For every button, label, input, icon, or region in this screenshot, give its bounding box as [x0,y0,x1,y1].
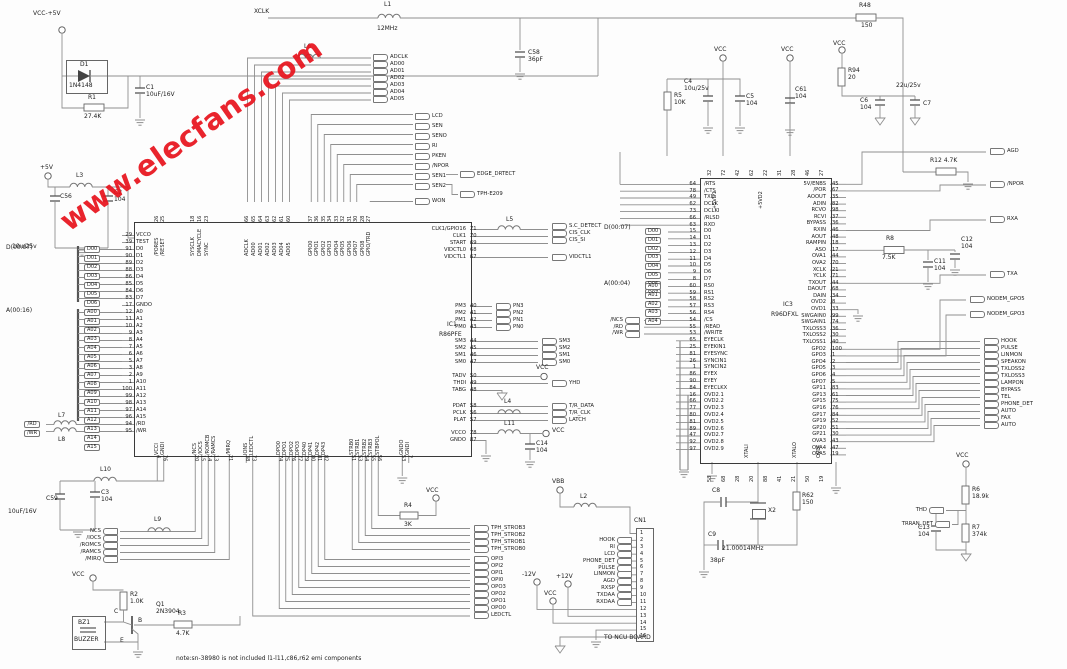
pin-number: 69 [466,241,490,246]
pin-number: 65 [640,338,698,343]
pin-name: TXLOSS2 [760,333,826,338]
bus-signal-tag: D02 [84,264,100,271]
pin-number: 44 [826,281,850,286]
pin-name: STRB3 [369,421,374,455]
pin-number: 41 [778,464,783,482]
tag-shape-icon [415,173,430,180]
signal-tag: RXA [988,216,1018,223]
ad-tags: ADCLKAD00AD01AD02AD03AD04AD05 [371,54,408,103]
pin-row: 11A1 [112,316,152,323]
bus-signal-tag: A09 [84,390,100,397]
tag-shape-icon [617,551,632,558]
pin-name: LEDCTL [250,421,255,455]
pin-number: 71 [826,274,850,279]
pin-number: 31 [348,202,353,222]
ic1-top-pins-reset: 26/PORES25/RESET [154,202,167,256]
signal-tag: LAMPON [982,380,1033,387]
pin-row: GPO31 [760,352,850,359]
pin-column-item: 88 [759,464,773,482]
tag-shape-icon [103,528,118,535]
tag-shape-icon [474,584,489,591]
tag-label: THD [916,508,927,513]
pin-name: IONS [244,421,249,455]
pin-number: 89 [640,427,698,432]
signal-tag: /IOCS [86,535,120,542]
edge-tag: EDGE_DRTECT [458,171,515,178]
r7-value: 374k [972,531,987,538]
tag-shape-icon [415,113,430,120]
tag-label: S.C_DETECT [569,224,601,229]
pin-number: 39 [112,240,134,245]
pin-name: PM2 [404,311,466,316]
tag-label: /NCS [610,318,623,323]
pin-number: 26 [155,202,160,222]
c3-ref: C3 [101,489,112,496]
pin-number: 5 [826,380,850,385]
tag-label: SM0 [559,360,570,365]
pin-name: GPIO4 [335,222,340,256]
pin-name: TXLOSS1 [760,340,826,345]
pin-name: OVD2.1 [698,393,724,398]
pin-name: AOOUT [760,195,826,200]
pin-name: SYNCIN1 [698,359,727,364]
tag-shape-icon [415,133,430,140]
bus-signal-tag: A03 [645,309,661,316]
pin-number: 2 [112,373,134,378]
connector-pin-number: 4 [640,551,646,558]
tag-shape-icon [415,153,430,160]
tag-shape-icon [990,181,1005,188]
sm-tags: SM3SM2SM1SM0 [540,338,570,366]
pin-name: GP15 [760,399,826,404]
pin-name: A11 [134,387,146,392]
pin-name: 5V/ENBS [760,182,826,187]
pin-number: 48 [826,235,850,240]
pin-name: GNDO [404,438,466,443]
tag-shape-icon [496,310,511,317]
pin-number: 96 [112,415,134,420]
pin-name: RCVI [760,215,826,220]
connector-pin-number: 9 [640,585,646,592]
tag-shape-icon [474,539,489,546]
bus-signal-tag: D03 [645,254,661,261]
rdwr-tags: /RD/WR [24,421,40,439]
pin-name: VCCO [404,431,466,436]
q1-label: Q12N3904 [156,601,180,615]
pin-name: GPIO7 [354,222,359,256]
bus-signal-tag: D01 [84,255,100,262]
yhd-tag: YHD [550,380,580,387]
bus-signal-tag: D01 [645,237,661,244]
signal-tag: AD01 [371,68,408,75]
pin-name: GPIO6 [348,222,353,256]
tag-shape-icon [542,345,557,352]
pin-number: 36 [826,327,850,332]
signal-tag: TPH_STROB0 [472,546,526,553]
pin-name: PM0 [404,325,466,330]
signal-tag: AD02 [371,75,408,82]
pin-row: 84D6 [112,288,152,295]
pin-name: A12 [134,394,146,399]
connector-pin-number: 10 [640,592,646,599]
pin-name: DAIN [760,294,826,299]
pin-number: 42 [736,158,741,176]
ic3-5vd2-label: +5VD2 [758,183,764,209]
pin-number: 74 [277,455,282,475]
pin-row: 29VCCO [112,232,152,239]
pin-row: YCLK71 [760,273,850,280]
tag-label: SPEAKON [1001,360,1026,365]
pin-number: 44 [826,254,850,259]
tag-label: TPH_STROB3 [491,526,526,531]
tag-label: AD02 [390,76,404,81]
cis-tags: S.C_DETECTCIS_CLKCIS_SI [550,223,601,244]
pin-number: 66 [245,202,250,222]
pin-number: 56 [376,455,381,475]
r8-label: R8 [886,235,894,242]
tag-label: PN1 [513,318,524,323]
tag-label: TXLOSS2 [1001,367,1025,372]
pin-row: 97OVD2.9 [640,446,728,453]
signal-tag: THD [916,507,946,514]
c56-value: 10u/25v [12,243,37,250]
bus-signal-tag: A00 [84,309,100,316]
signal-tag: CIS_CLK [550,230,601,237]
pin-name: DP41 [309,421,314,455]
pin-row: RCVO98 [760,207,850,214]
c12-ref: C12 [961,236,973,243]
tag-label: OPI1 [491,571,503,576]
signal-tag: SEN2 [413,181,449,191]
pin-row: 7A5 [112,344,152,351]
pin-number: 75 [826,399,850,404]
ncs-tags: NCS/IOCS/ROMCS/RAMCS/MIRQ [82,528,120,563]
pin-name: /RESET [161,222,166,256]
ic1-left-pins: 29VCCO39TEST91D090D189D288D386D485D584D6… [112,232,152,435]
pin-row: OVD133 [760,306,850,313]
l8-label: L8 [58,436,65,443]
tag-label: PULSE [598,566,615,571]
tag-shape-icon [496,317,511,324]
pin-name: GPO6 [760,373,826,378]
c9-value: 38pF [710,557,725,564]
tag-label: OPO0 [491,606,506,611]
c3-value: 104 [101,496,112,503]
pin-row: 88D3 [112,267,152,274]
tag-shape-icon [460,191,475,198]
pin-name: YCLK [760,274,826,279]
pin-number: 83 [112,296,134,301]
tag-label: RXDAA [596,600,615,605]
signal-tag: /NPOR [413,161,449,171]
pin-name: RXIN [760,228,826,233]
pin-number: 97 [640,447,698,452]
pin-name: /RLSD [698,216,720,221]
vbb-label: VBB [552,478,564,485]
pin-name: SM1 [404,353,466,358]
pin-name: GPIO1 [315,222,320,256]
pin-name: D6 [134,289,143,294]
tag-shape-icon [373,89,388,96]
pin-number: 1 [640,365,698,370]
pin-name: /READ [698,325,720,330]
pin-column-item: 72 [717,158,731,176]
pin-row: VIDCTL068 [404,247,490,254]
pin-number: 76 [290,455,295,475]
tag-label: LINMON [1001,353,1022,358]
pin-row: 96A15 [112,414,152,421]
pin-name: TXLOSS3 [760,327,826,332]
pin-column-item: 68 [717,464,731,482]
d1-label: D1 [80,61,88,68]
pin-column-item: 31 [773,158,787,176]
pin-number: 62 [273,202,278,222]
connector-pin-number: 1 [640,530,646,537]
signal-tag: BYPASS [982,387,1033,394]
pin-number: 36 [315,202,320,222]
pin-number: 19 [826,452,850,457]
pin-name: OVA2 [760,261,826,266]
pin-column-item: 41 [773,464,787,482]
r5-label: R510K [674,92,686,106]
pin-number: 86 [640,372,698,377]
tag-shape-icon [415,123,430,130]
pin-column-item: 28 [731,464,745,482]
pin-row: CLK1/GPIO1671 [404,226,490,233]
pin-name: D1 [698,236,711,241]
tag-shape-icon [984,352,999,359]
pin-row: GP1183 [760,385,850,392]
pin-number: 28 [792,158,797,176]
q1-value: 2N3904 [156,608,180,615]
pin-name: D2 [698,243,711,248]
ic1-bottom-pins-pwr: 4VCCI76GNDI [154,421,167,475]
pin-number: 7 [406,455,411,475]
signal-tag: RXDAA [596,599,634,606]
pin-name: STRB1 [356,421,361,455]
tph-strobe-tags: TPH_STROB3TPH_STROB2TPH_STROB1TPH_STROB0 [472,525,526,553]
tag-label: RXA [1007,217,1018,222]
pin-number: 32 [341,202,346,222]
tph-e209-tag: TPH-E209 [458,191,503,198]
bus-signal-tag: /RD [24,421,40,428]
pin-number: 64 [259,202,264,222]
pin-number: 45 [466,346,490,351]
tag-label: RI [432,144,437,149]
pin-row: PCLK56 [404,410,490,417]
pin-number: 68 [826,287,850,292]
pin-column-item: 20 [745,464,759,482]
signal-tag: NODEM_GPO5 [968,296,1025,303]
pin-number: 94 [112,422,134,427]
pin-column-item: 22 [759,158,773,176]
l4-label: L4 [504,398,511,405]
pin-row: TABG48 [404,387,490,394]
pin-name: STBPOL [376,421,381,455]
tag-shape-icon [617,599,632,606]
tag-label: BYPASS [1001,388,1021,393]
pin-number: 3 [112,366,134,371]
signal-tag: WON [413,198,445,205]
r5-value: 10K [674,99,686,106]
signal-tag: OPO1 [472,598,506,605]
pin-number: 90 [640,379,698,384]
tag-label: PULSE [1001,346,1018,351]
ic3-xtalo-label: XTALO [792,430,798,458]
c1-ref: C1 [146,84,175,91]
c6-label: C6104 [860,97,871,111]
pin-number: 100 [826,347,850,352]
signal-tag: OPI1 [472,570,503,577]
tag-label: AD03 [390,83,404,88]
signal-tag: PN1 [494,317,524,324]
pin-number: 20 [750,464,755,482]
bus-signal-tag: A11 [84,408,100,415]
signal-tag: AGD [988,148,1019,155]
pin-number: 84 [112,289,134,294]
pin-number: 8 [826,300,850,305]
pin-number: 71 [466,227,490,232]
ic1-right-pins-pm: PM340PM241PM142PM043 [404,303,490,331]
signal-tag: SM3 [540,338,570,345]
minus12-label: -12V [522,571,536,578]
c11-value: 104 [934,265,946,272]
tag-shape-icon [935,521,950,528]
tag-shape-icon [552,254,567,261]
pin-number: 81 [640,420,698,425]
signal-tag: TXLOSS3 [982,373,1033,380]
vcc-label-3: VCC [833,40,845,47]
signal-tag: OPO2 [472,591,506,598]
pin-name: A7 [134,359,143,364]
pin-name: D5 [698,263,711,268]
pin-name: /CS [698,318,713,323]
pin-number: 98 [826,208,850,213]
tag-shape-icon [552,380,567,387]
c12-label: C12104 [961,236,973,250]
pin-row: 8A4 [112,337,152,344]
c9-label: C9 [708,531,716,538]
pin-number: 4 [826,373,850,378]
pin-row: 66/RLSD [640,215,728,222]
vcc-label-buzzer: VCC [72,571,84,578]
pin-column-item: 82DP43 [322,421,329,475]
modem-gpo3-tag: NODEM_GPO3 [968,311,1025,318]
pin-number: 7 [112,345,134,350]
ic1-right-pins-clk: CLK1/GPIO1671CLK170START69VIDCTL068VIDCT… [404,226,490,261]
tag-shape-icon [474,598,489,605]
pin-column-item: 76GNDI [161,421,168,475]
pin-column-item: 53 [703,464,717,482]
signal-tag: /NPOR [988,181,1024,188]
pin-name: EYEY [698,379,717,384]
pin-column-item: 42 [731,158,745,176]
pin-row: PM142 [404,317,490,324]
pin-name: DCLKI [698,209,719,214]
pin-name: CLK1 [404,234,466,239]
pin-name: VIDCTL0 [404,248,466,253]
tag-label: PN0 [513,325,524,330]
pin-name: GPO7 [760,380,826,385]
pin-number: 38 [244,455,249,475]
a-bus3-tags: A00A01A02A03A04 [645,283,661,327]
agd-tag: AGD [988,148,1019,155]
pin-name: GP16 [760,406,826,411]
npor-tag: /NPOR [988,181,1024,188]
pin-name: GPIO3 [328,222,333,256]
pin-number: 51 [826,426,850,431]
pin-row: TXLOSS140 [760,339,850,346]
pin-number: 27 [820,158,825,176]
pin-row: 2A9 [112,372,152,379]
signal-tag: PN0 [494,324,524,331]
tag-label: TXA [1007,272,1018,277]
bus-signal-tag: D00 [84,246,100,253]
pin-name: DMACYCLE [198,222,203,256]
pin-row: 12A0 [112,309,152,316]
pin-name: GP19 [760,419,826,424]
pin-row: 81EYESYNC [640,351,728,358]
pin-number: 12 [112,310,134,315]
tag-shape-icon [415,183,430,190]
pin-row: 90D1 [112,253,152,260]
pin-name: ADIN [760,202,826,207]
pin-row: OVA343 [760,438,850,445]
tag-label: T/R_CLK [569,411,590,416]
pin-row: RXIN46 [760,227,850,234]
pin-number: 86 [112,275,134,280]
c7-label: C7 [923,100,931,107]
tag-shape-icon [474,570,489,577]
tag-label: NODEM_GPO5 [987,297,1025,302]
pin-name: EYECLKX [698,386,727,391]
tag-shape-icon [496,324,511,331]
pin-number: 21 [792,464,797,482]
cn1-pin-numbers: 12345678910111213141516 [640,530,646,640]
pin-number: 97 [112,408,134,413]
d1-ref: D1 [80,61,88,68]
pin-name: /WR [134,429,146,434]
bus-signal-tag: /WR [24,430,40,437]
bus-signal-tag: D03 [84,273,100,280]
bus-signal-tag: D04 [84,282,100,289]
r5-ref: R5 [674,92,686,99]
pin-number: 15 [199,455,204,475]
tag-shape-icon [970,311,985,318]
bus-signal-tag: D05 [84,291,100,298]
pin-row: 84EYECLKX [640,385,728,392]
bus-signal-tag: A14 [84,435,100,442]
pin-number: 2 [826,360,850,365]
pin-name: A9 [134,373,143,378]
tag-label: EDGE_DRTECT [477,172,515,177]
signal-tag: VIDCTL1 [550,254,592,261]
vcc-label-thd: VCC [956,452,968,459]
pin-column-item: 28 [787,158,801,176]
pin-name: BYPASS [760,221,826,226]
pin-name: TEST [134,240,149,245]
pin-number: 70 [466,234,490,239]
opi-tags: OPI3OPI2OPI1OPI0 [472,556,503,584]
signal-tag: LCD [604,551,634,558]
pin-number: 47 [466,360,490,365]
signal-tag: SM1 [540,352,570,359]
pin-number: 35 [322,202,327,222]
pin-row: 100A11 [112,386,152,393]
pin-name: SM2 [404,346,466,351]
pin-name: GNDI [161,421,166,455]
pin-name: D5 [134,282,143,287]
